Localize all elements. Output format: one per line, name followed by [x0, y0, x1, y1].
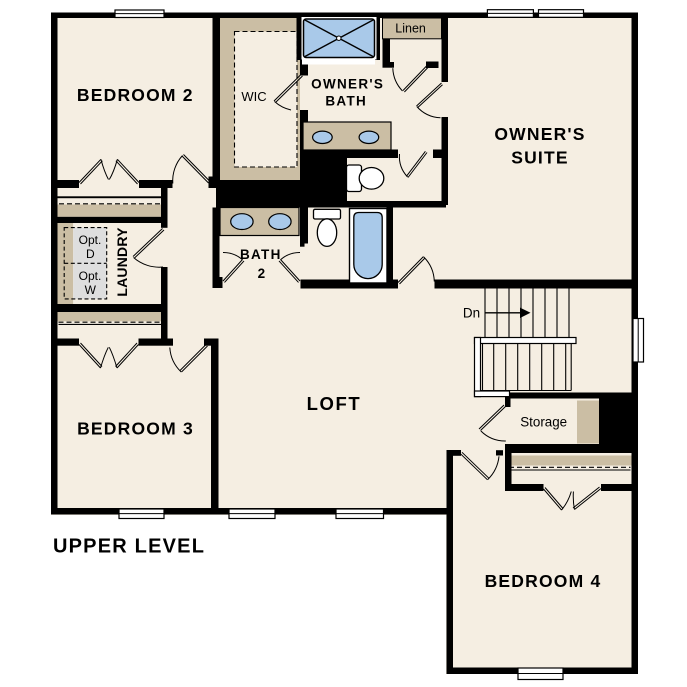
svg-text:Opt.: Opt. [79, 269, 102, 283]
svg-text:Storage: Storage [520, 414, 567, 429]
svg-text:Linen: Linen [395, 21, 426, 35]
svg-text:BATH: BATH [240, 247, 282, 262]
svg-text:Dn: Dn [463, 305, 480, 320]
svg-text:LAUNDRY: LAUNDRY [114, 227, 130, 297]
svg-text:D: D [86, 247, 95, 261]
svg-text:Opt.: Opt. [79, 233, 102, 247]
svg-text:LOFT: LOFT [307, 393, 362, 414]
svg-text:UPPER LEVEL: UPPER LEVEL [53, 536, 205, 558]
svg-text:WIC: WIC [241, 89, 266, 104]
svg-text:2: 2 [258, 266, 267, 281]
svg-text:OWNER'S: OWNER'S [311, 76, 384, 91]
svg-text:BEDROOM 2: BEDROOM 2 [77, 85, 194, 105]
svg-text:BATH: BATH [325, 94, 367, 109]
svg-text:OWNER'S: OWNER'S [494, 124, 585, 144]
svg-text:W: W [85, 283, 97, 297]
svg-text:SUITE: SUITE [511, 148, 569, 168]
svg-text:BEDROOM 3: BEDROOM 3 [77, 418, 194, 438]
svg-text:BEDROOM 4: BEDROOM 4 [485, 571, 602, 591]
